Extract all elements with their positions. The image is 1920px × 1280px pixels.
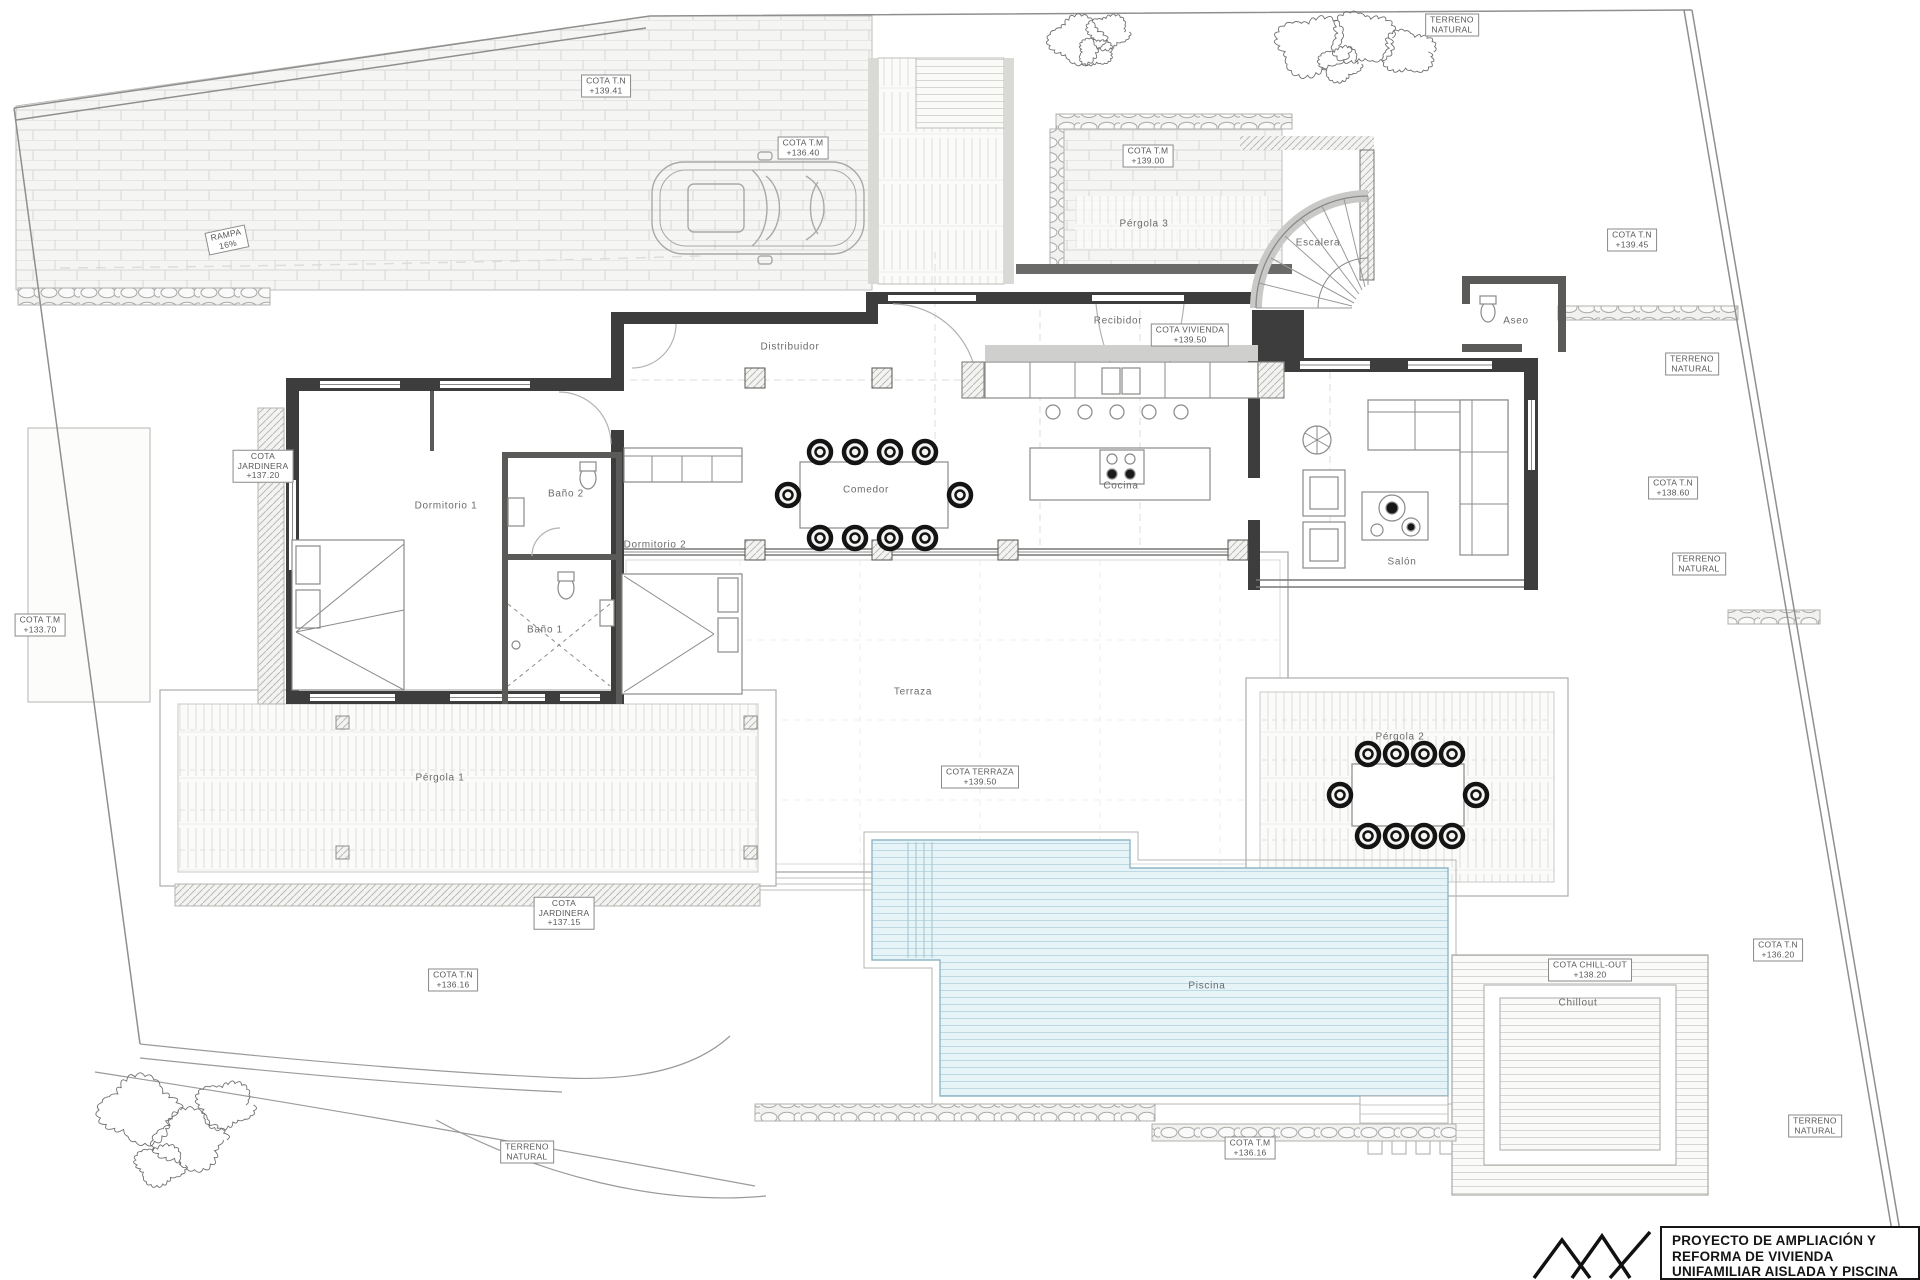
jardinera-west	[258, 408, 284, 704]
terrain-curves	[95, 1036, 766, 1198]
floor-plan-sheet: COTA T.N+139.41RAMPA16%COTA T.M+136.40CO…	[0, 0, 1920, 1280]
ramp	[868, 58, 1014, 284]
jardinera-south	[175, 884, 760, 906]
studio-logo	[1534, 1232, 1650, 1278]
title-block: PROYECTO DE AMPLIACIÓN Y REFORMA DE VIVI…	[1660, 1226, 1920, 1280]
title-line-2: REFORMA DE VIVIENDA	[1672, 1249, 1910, 1265]
pergola-1-structure	[160, 690, 776, 886]
floor-plan-drawing	[0, 0, 1920, 1280]
title-line-1: PROYECTO DE AMPLIACIÓN Y	[1672, 1233, 1910, 1249]
chillout-deck	[1452, 955, 1708, 1195]
title-line-3: UNIFAMILIAR AISLADA Y PISCINA	[1672, 1264, 1910, 1280]
